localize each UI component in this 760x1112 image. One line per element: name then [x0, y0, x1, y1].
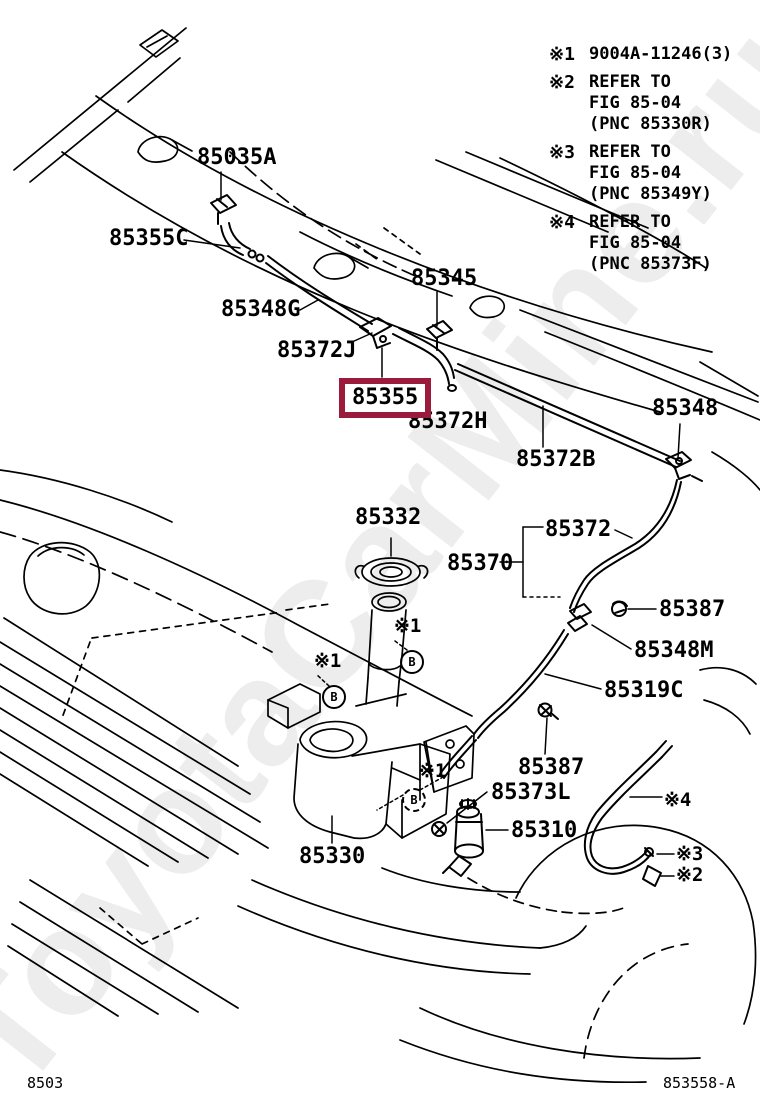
note-3: ※3 REFER TO FIG 85-04 (PNC 85349Y) — [549, 142, 732, 205]
part-label-85332[interactable]: 85332 — [355, 507, 421, 529]
reference-notes: ※1 9004A-11246(3) ※2 REFER TO FIG 85-04 … — [549, 44, 732, 282]
note-4-marker: ※4 — [549, 212, 583, 275]
ref-marker-star3: ※3 — [676, 845, 703, 864]
ref-marker-circle-b-tank: B — [402, 788, 426, 812]
note-1: ※1 9004A-11246(3) — [549, 44, 732, 65]
ref-marker-circle-b-neck: B — [400, 650, 424, 674]
part-label-85372[interactable]: 85372 — [545, 519, 611, 541]
part-label-85373l[interactable]: 85373L — [491, 782, 570, 804]
part-label-85348[interactable]: 85348 — [652, 398, 718, 420]
note-3-marker: ※3 — [549, 142, 583, 205]
part-label-85348m[interactable]: 85348M — [634, 640, 713, 662]
footer-figure-code: 853558-A — [663, 1074, 735, 1092]
ref-marker-star2: ※2 — [676, 866, 703, 885]
ref-marker-circle-b-bracket: B — [322, 685, 346, 709]
note-1-text: 9004A-11246(3) — [589, 44, 732, 65]
note-1-marker: ※1 — [549, 44, 583, 65]
note-2-text: REFER TO FIG 85-04 (PNC 85330R) — [589, 72, 712, 135]
part-label-85345[interactable]: 85345 — [411, 268, 477, 290]
footer-page-code: 8503 — [27, 1074, 63, 1092]
part-label-85370[interactable]: 85370 — [447, 553, 513, 575]
part-label-85387-screw[interactable]: 85387 — [659, 599, 725, 621]
part-label-85387-clamp[interactable]: 85387 — [518, 757, 584, 779]
ref-marker-star4: ※4 — [664, 791, 691, 810]
part-label-85035a[interactable]: 85035A — [197, 147, 276, 169]
highlighted-part-85355[interactable]: 85355 — [339, 378, 431, 418]
part-label-85330[interactable]: 85330 — [299, 846, 365, 868]
note-2: ※2 REFER TO FIG 85-04 (PNC 85330R) — [549, 72, 732, 135]
ref-marker-star1-neck: ※1 — [394, 617, 421, 636]
note-3-text: REFER TO FIG 85-04 (PNC 85349Y) — [589, 142, 712, 205]
part-label-85348g[interactable]: 85348G — [221, 299, 300, 321]
part-label-85372j[interactable]: 85372J — [277, 340, 356, 362]
part-label-85310[interactable]: 85310 — [511, 820, 577, 842]
highlighted-part-number: 85355 — [352, 385, 418, 410]
parts-diagram-page: ToyotaCarMine.ru — [0, 0, 760, 1112]
part-label-85372b[interactable]: 85372B — [516, 449, 595, 471]
note-2-marker: ※2 — [549, 72, 583, 135]
ref-marker-star1-tank: ※1 — [419, 762, 446, 781]
note-4-text: REFER TO FIG 85-04 (PNC 85373F) — [589, 212, 712, 275]
note-4: ※4 REFER TO FIG 85-04 (PNC 85373F) — [549, 212, 732, 275]
part-label-85355c[interactable]: 85355C — [109, 228, 188, 250]
ref-marker-star1-bracket: ※1 — [314, 652, 341, 671]
part-label-85319c[interactable]: 85319C — [604, 680, 683, 702]
